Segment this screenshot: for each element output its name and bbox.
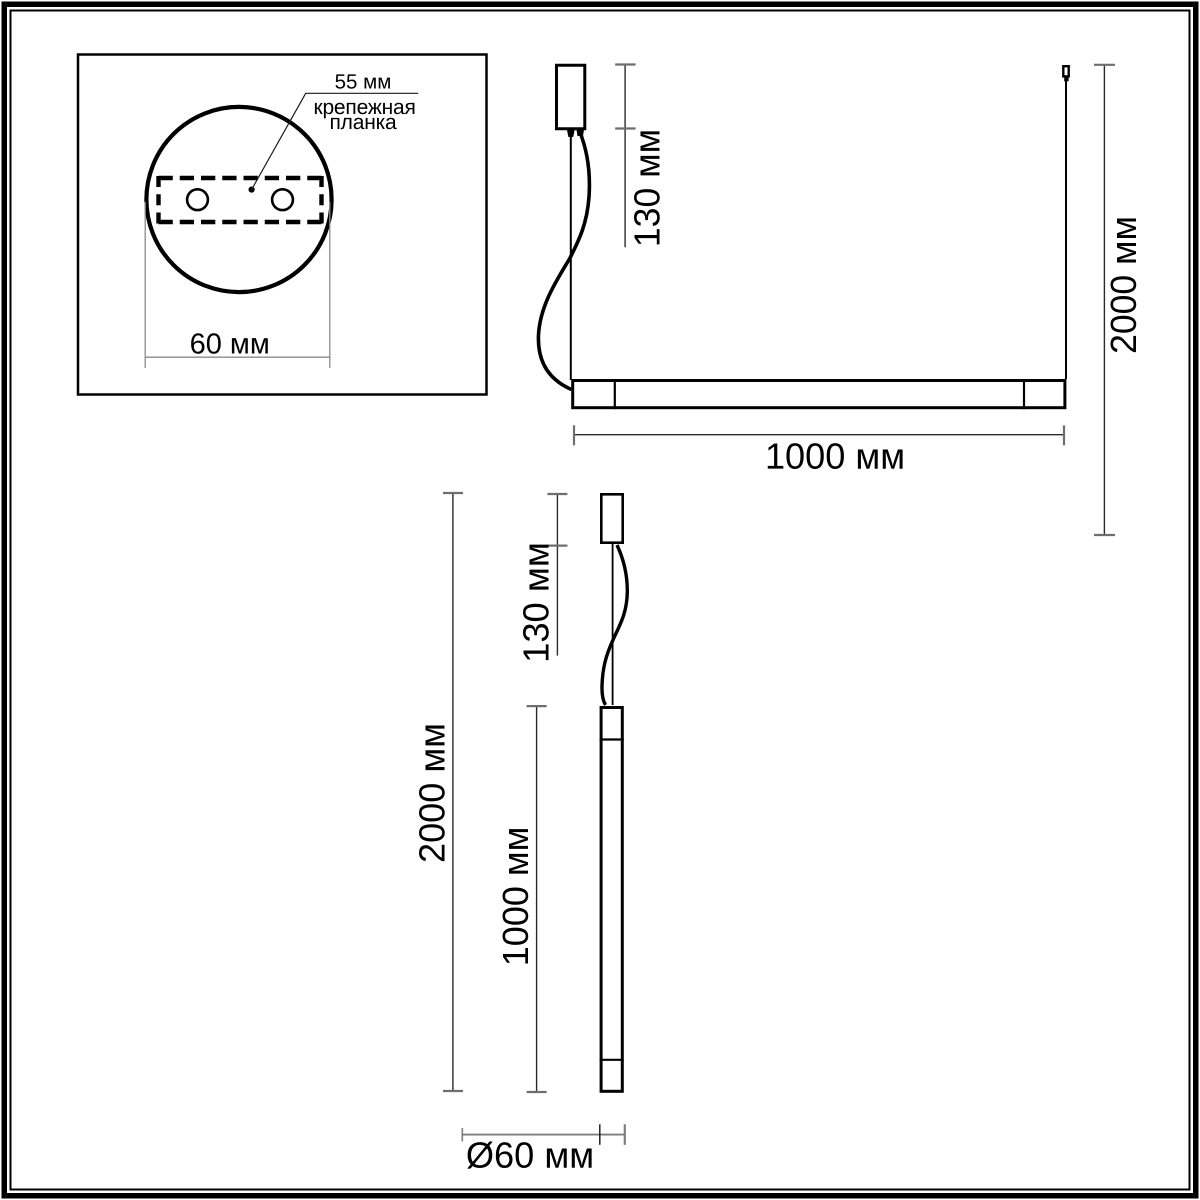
svg-text:130 мм: 130 мм [516,542,557,663]
svg-text:1000 мм: 1000 мм [495,827,536,967]
svg-text:55 мм: 55 мм [335,70,392,93]
svg-text:2000 мм: 2000 мм [411,723,452,863]
svg-text:60 мм: 60 мм [190,328,270,360]
svg-text:2000 мм: 2000 мм [1103,216,1144,354]
svg-text:Ø60 мм: Ø60 мм [466,1135,594,1176]
svg-text:планка: планка [329,111,397,134]
svg-text:130 мм: 130 мм [626,129,667,247]
svg-text:1000 мм: 1000 мм [765,436,905,477]
